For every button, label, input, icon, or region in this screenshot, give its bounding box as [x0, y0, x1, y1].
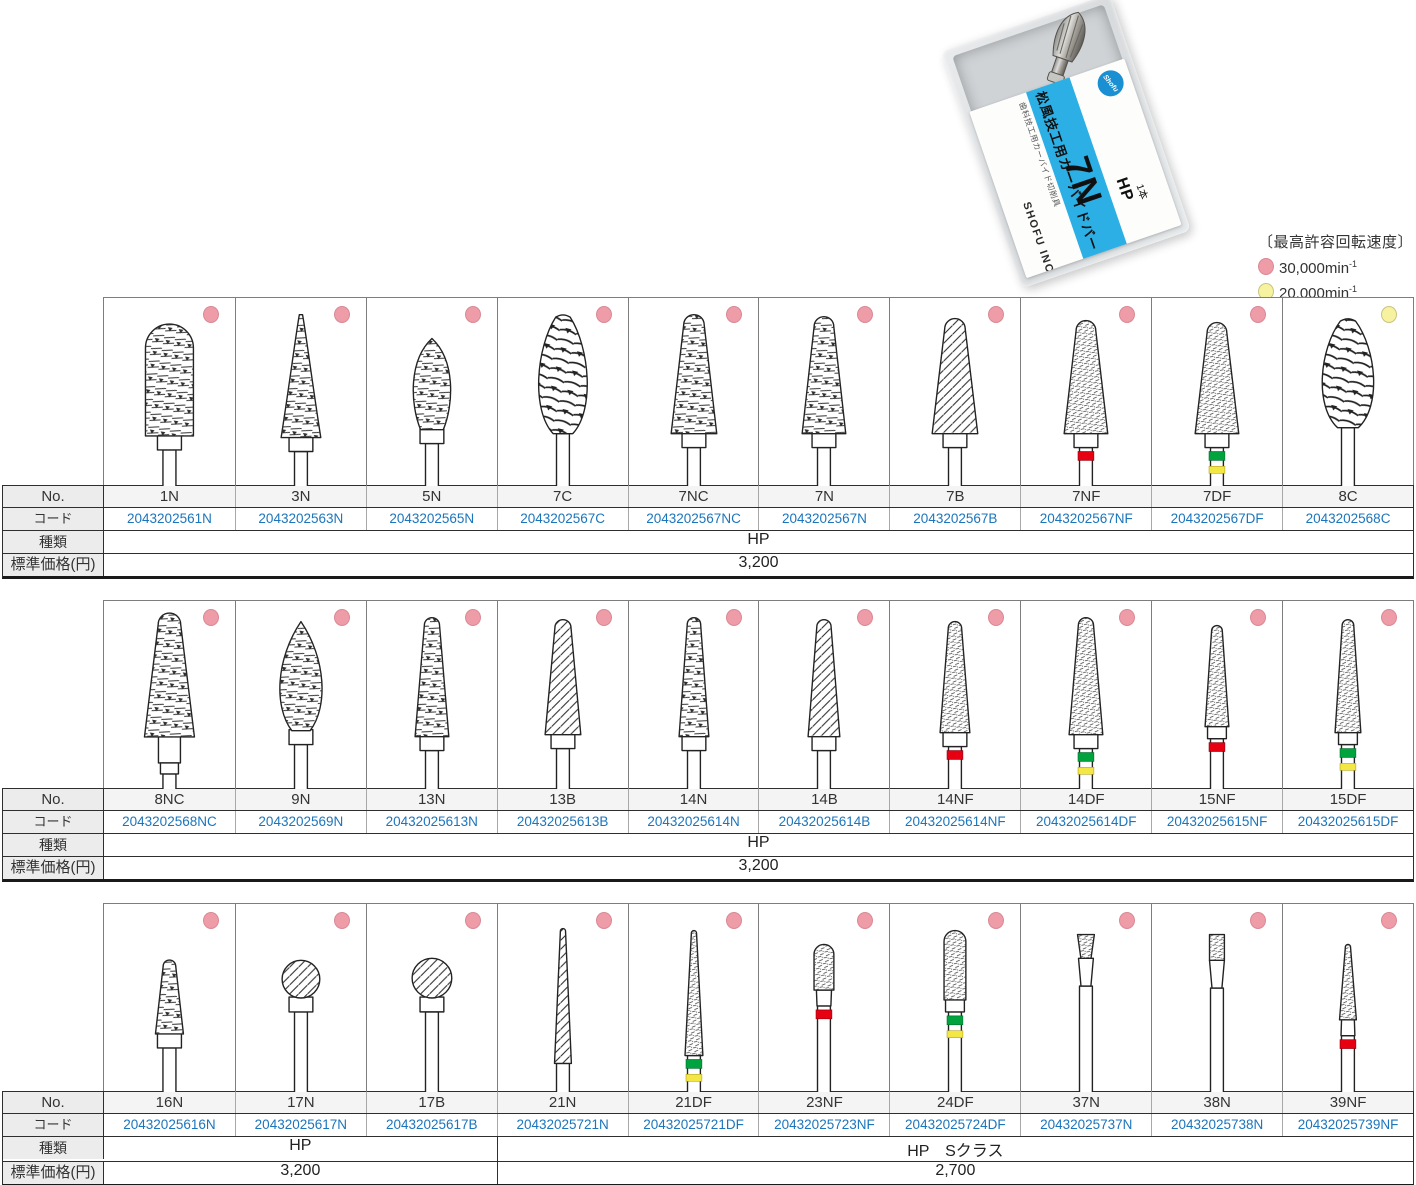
no-cell-13N: 13N	[366, 789, 497, 810]
no-cell-7NC: 7NC	[628, 486, 759, 507]
bur-image-cell-1N	[104, 298, 235, 486]
price-span-cell: 3,200	[104, 554, 1413, 576]
type-row: 種類HP	[2, 530, 1414, 553]
no-cell-17B: 17B	[366, 1092, 497, 1113]
code-cell-7NF: 2043202567NF	[1020, 508, 1151, 530]
no-cell-16N: 16N	[104, 1092, 235, 1113]
row-label-no: No.	[3, 486, 104, 507]
bur-illustration-14NF	[890, 601, 1020, 789]
row-label-price: 標準価格(円)	[3, 1162, 104, 1184]
package-type-code: HP	[1112, 175, 1137, 204]
bur-image-cell-23NF	[758, 904, 889, 1092]
type-span-cell: HP	[104, 834, 1413, 856]
code-cell-37N: 20432025737N	[1020, 1114, 1151, 1136]
speed-dot-pink	[334, 912, 350, 929]
no-row: No.16N17N17B21N21DF23NF24DF37N38N39NF	[2, 1091, 1414, 1113]
bur-illustration-8C	[1283, 298, 1413, 486]
row-label-price: 標準価格(円)	[3, 857, 104, 879]
bur-image-cell-7N	[758, 298, 889, 486]
price-span-cell: 3,200	[104, 1162, 497, 1184]
bur-image-cell-24DF	[889, 904, 1020, 1092]
code-cell-13N: 20432025613N	[366, 811, 497, 833]
bur-illustration-14N	[629, 601, 759, 789]
bur-image-cell-14NF	[889, 601, 1020, 789]
bur-image-strip	[103, 297, 1414, 485]
speed-dot-pink	[203, 912, 219, 929]
code-cell-7DF: 2043202567DF	[1151, 508, 1282, 530]
bur-image-cell-14N	[628, 601, 759, 789]
no-cell-7B: 7B	[889, 486, 1020, 507]
code-cell-7B: 2043202567B	[889, 508, 1020, 530]
no-cell-7NF: 7NF	[1020, 486, 1151, 507]
no-cell-14B: 14B	[758, 789, 889, 810]
bur-image-strip	[103, 600, 1414, 788]
code-cell-21DF: 20432025721DF	[628, 1114, 759, 1136]
catalog-page: Shofu 歯科技工用カーバイド切削具 松風技工用カーバイドバー 7N HP 1…	[0, 0, 1416, 1185]
type-span-cell: HP	[104, 531, 1413, 553]
speed-dot-pink	[1381, 912, 1397, 929]
row-label-type: 種類	[3, 1137, 104, 1159]
bur-illustration-16N	[104, 904, 235, 1092]
speed-dot-pink	[1250, 912, 1266, 929]
bur-table-1: No.1N3N5N7C7NC7N7B7NF7DF8Cコード2043202561N…	[2, 297, 1414, 579]
package-case: Shofu 歯科技工用カーバイド切削具 松風技工用カーバイドバー 7N HP 1…	[941, 0, 1191, 288]
bur-image-cell-39NF	[1282, 904, 1413, 1092]
row-label-no: No.	[3, 789, 104, 810]
code-cell-14N: 20432025614N	[628, 811, 759, 833]
code-cell-1N: 2043202561N	[104, 508, 235, 530]
product-package-photo: Shofu 歯科技工用カーバイド切削具 松風技工用カーバイドバー 7N HP 1…	[925, 2, 1225, 292]
row-label-code: コード	[3, 1114, 104, 1136]
bur-illustration-24DF	[890, 904, 1020, 1092]
no-cell-15DF: 15DF	[1282, 789, 1413, 810]
code-cell-39NF: 20432025739NF	[1282, 1114, 1413, 1136]
type-span-cell: HP	[104, 1137, 497, 1161]
price-span-cell: 2,700	[497, 1162, 1413, 1184]
bur-image-cell-13B	[497, 601, 628, 789]
speed-dot-pink	[1381, 609, 1397, 626]
bur-illustration-13B	[498, 601, 628, 789]
code-cell-14B: 20432025614B	[758, 811, 889, 833]
speed-dot-pink	[596, 912, 612, 929]
code-cell-17B: 20432025617B	[366, 1114, 497, 1136]
bur-illustration-23NF	[759, 904, 889, 1092]
bur-image-cell-14B	[758, 601, 889, 789]
no-cell-8NC: 8NC	[104, 789, 235, 810]
bur-image-cell-7NF	[1020, 298, 1151, 486]
no-cell-7N: 7N	[758, 486, 889, 507]
row-label-no: No.	[3, 1092, 104, 1113]
bur-illustration-8NC	[104, 601, 235, 789]
bur-illustration-14B	[759, 601, 889, 789]
bur-illustration-21DF	[629, 904, 759, 1092]
no-cell-38N: 38N	[1151, 1092, 1282, 1113]
bur-illustration-21N	[498, 904, 628, 1092]
speed-dot-pink	[596, 306, 612, 323]
price-span-cell: 3,200	[104, 857, 1413, 879]
package-brand: SHOFU INC.	[1020, 200, 1057, 278]
bur-table-3: No.16N17N17B21N21DF23NF24DF37N38N39NFコード…	[2, 903, 1414, 1185]
no-row: No.8NC9N13N13B14N14B14NF14DF15NF15DF	[2, 788, 1414, 810]
bur-illustration-5N	[367, 298, 497, 486]
bur-illustration-15NF	[1152, 601, 1282, 789]
speed-dot-pink	[203, 609, 219, 626]
bur-illustration-17B	[367, 904, 497, 1092]
no-cell-21DF: 21DF	[628, 1092, 759, 1113]
bur-illustration-9N	[236, 601, 366, 789]
no-cell-8C: 8C	[1282, 486, 1413, 507]
row-label-price: 標準価格(円)	[3, 554, 104, 576]
price-row: 標準価格(円)3,200	[2, 553, 1414, 579]
speed-dot-pink	[596, 609, 612, 626]
bur-illustration-7C	[498, 298, 628, 486]
code-cell-17N: 20432025617N	[235, 1114, 366, 1136]
bur-image-cell-7C	[497, 298, 628, 486]
no-cell-14DF: 14DF	[1020, 789, 1151, 810]
bur-image-strip	[103, 903, 1414, 1091]
bur-image-cell-5N	[366, 298, 497, 486]
code-cell-38N: 20432025738N	[1151, 1114, 1282, 1136]
no-cell-23NF: 23NF	[758, 1092, 889, 1113]
bur-image-cell-16N	[104, 904, 235, 1092]
bur-image-cell-15DF	[1282, 601, 1413, 789]
no-cell-39NF: 39NF	[1282, 1092, 1413, 1113]
speed-dot-pink	[1258, 258, 1274, 275]
code-cell-16N: 20432025616N	[104, 1114, 235, 1136]
code-cell-24DF: 20432025724DF	[889, 1114, 1020, 1136]
speed-dot-pink	[1250, 306, 1266, 323]
speed-dot-pink	[465, 306, 481, 323]
no-row: No.1N3N5N7C7NC7N7B7NF7DF8C	[2, 485, 1414, 507]
bur-image-cell-8NC	[104, 601, 235, 789]
bur-image-cell-15NF	[1151, 601, 1282, 789]
legend-label: 30,000min-1	[1279, 254, 1357, 279]
no-cell-21N: 21N	[497, 1092, 628, 1113]
no-cell-24DF: 24DF	[889, 1092, 1020, 1113]
no-cell-5N: 5N	[366, 486, 497, 507]
bur-illustration-7DF	[1152, 298, 1282, 486]
code-cell-5N: 2043202565N	[366, 508, 497, 530]
bur-illustration-15DF	[1283, 601, 1413, 789]
code-cell-8NC: 2043202568NC	[104, 811, 235, 833]
code-cell-15NF: 20432025615NF	[1151, 811, 1282, 833]
shofu-logo: Shofu	[1092, 65, 1129, 102]
code-cell-7NC: 2043202567NC	[628, 508, 759, 530]
bur-image-cell-17B	[366, 904, 497, 1092]
row-label-code: コード	[3, 811, 104, 833]
code-cell-9N: 2043202569N	[235, 811, 366, 833]
speed-dot-pink	[465, 609, 481, 626]
legend-title: 〔最高許容回転速度〕	[1258, 231, 1413, 252]
bur-illustration-17N	[236, 904, 366, 1092]
type-span-cell: HP Sクラス	[497, 1137, 1413, 1161]
no-cell-14N: 14N	[628, 789, 759, 810]
code-cell-3N: 2043202563N	[235, 508, 366, 530]
bur-image-cell-8C	[1282, 298, 1413, 486]
bur-illustration-7NF	[1021, 298, 1151, 486]
no-cell-7C: 7C	[497, 486, 628, 507]
bur-illustration-3N	[236, 298, 366, 486]
code-cell-8C: 2043202568C	[1282, 508, 1413, 530]
no-cell-7DF: 7DF	[1151, 486, 1282, 507]
bur-image-cell-7DF	[1151, 298, 1282, 486]
bur-illustration-38N	[1152, 904, 1282, 1092]
bur-image-cell-17N	[235, 904, 366, 1092]
row-label-type: 種類	[3, 531, 104, 553]
speed-dot-pink	[334, 609, 350, 626]
price-row: 標準価格(円)3,200	[2, 856, 1414, 882]
row-label-code: コード	[3, 508, 104, 530]
bur-illustration-7NC	[629, 298, 759, 486]
speed-dot-pink	[334, 306, 350, 323]
bur-illustration-37N	[1021, 904, 1151, 1092]
code-row: コード20432025616N20432025617N20432025617B2…	[2, 1113, 1414, 1136]
speed-dot-pink	[465, 912, 481, 929]
no-cell-9N: 9N	[235, 789, 366, 810]
bur-image-cell-37N	[1020, 904, 1151, 1092]
type-row: 種類HPHP Sクラス	[2, 1136, 1414, 1161]
no-cell-14NF: 14NF	[889, 789, 1020, 810]
price-row: 標準価格(円)3,2002,700	[2, 1161, 1414, 1185]
bur-illustration-1N	[104, 298, 235, 486]
no-cell-1N: 1N	[104, 486, 235, 507]
legend-item-30000: 30,000min-1	[1258, 254, 1413, 279]
code-row: コード2043202568NC2043202569N20432025613N20…	[2, 810, 1414, 833]
no-cell-17N: 17N	[235, 1092, 366, 1113]
type-row: 種類HP	[2, 833, 1414, 856]
bur-image-cell-7B	[889, 298, 1020, 486]
code-cell-14NF: 20432025614NF	[889, 811, 1020, 833]
bur-image-cell-14DF	[1020, 601, 1151, 789]
speed-dot-pink	[1250, 609, 1266, 626]
code-cell-13B: 20432025613B	[497, 811, 628, 833]
bur-illustration-14DF	[1021, 601, 1151, 789]
code-cell-23NF: 20432025723NF	[758, 1114, 889, 1136]
bur-image-cell-13N	[366, 601, 497, 789]
code-cell-21N: 20432025721N	[497, 1114, 628, 1136]
no-cell-15NF: 15NF	[1151, 789, 1282, 810]
bur-image-cell-21DF	[628, 904, 759, 1092]
bur-illustration-39NF	[1283, 904, 1413, 1092]
bur-image-cell-38N	[1151, 904, 1282, 1092]
bur-illustration-13N	[367, 601, 497, 789]
code-cell-15DF: 20432025615DF	[1282, 811, 1413, 833]
row-label-type: 種類	[3, 834, 104, 856]
code-cell-7C: 2043202567C	[497, 508, 628, 530]
no-cell-3N: 3N	[235, 486, 366, 507]
bur-table-2: No.8NC9N13N13B14N14B14NF14DF15NF15DFコード2…	[2, 600, 1414, 882]
speed-legend: 〔最高許容回転速度〕 30,000min-1 20,000min-1	[1258, 231, 1413, 304]
no-cell-13B: 13B	[497, 789, 628, 810]
speed-dot-pink	[203, 306, 219, 323]
no-cell-37N: 37N	[1020, 1092, 1151, 1113]
bur-illustration-7B	[890, 298, 1020, 486]
bur-image-cell-9N	[235, 601, 366, 789]
code-row: コード2043202561N2043202563N2043202565N2043…	[2, 507, 1414, 530]
bur-image-cell-21N	[497, 904, 628, 1092]
bur-illustration-7N	[759, 298, 889, 486]
code-cell-14DF: 20432025614DF	[1020, 811, 1151, 833]
code-cell-7N: 2043202567N	[758, 508, 889, 530]
bur-image-cell-7NC	[628, 298, 759, 486]
speed-dot-yellow	[1381, 306, 1397, 323]
bur-image-cell-3N	[235, 298, 366, 486]
